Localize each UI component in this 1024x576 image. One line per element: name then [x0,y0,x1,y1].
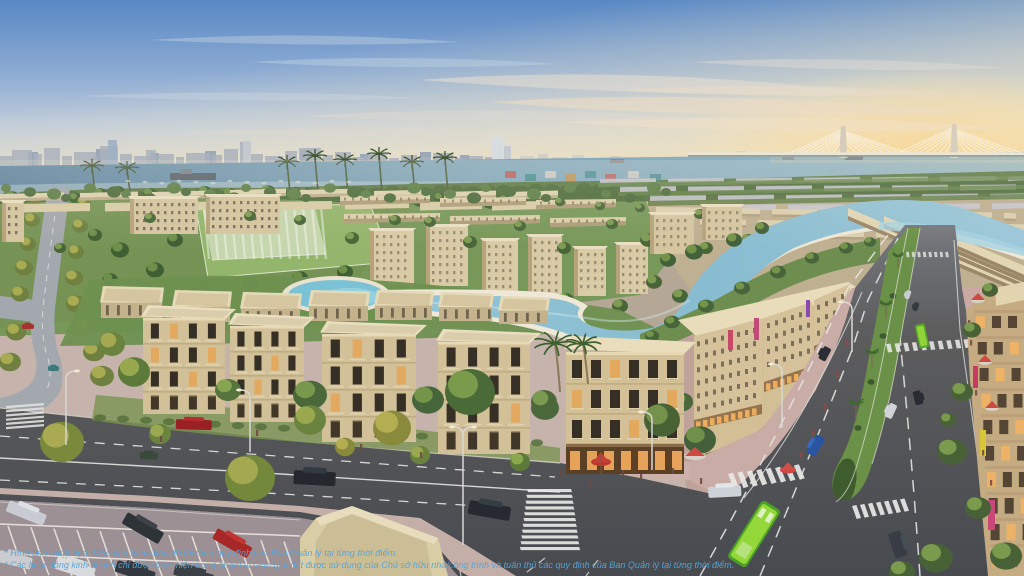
svg-text:* Các hoạt động kinh doanh chỉ: * Các hoạt động kinh doanh chỉ được thực… [4,560,734,570]
svg-text:* Hình ảnh minh họa. Việc vận: * Hình ảnh minh họa. Việc vận hành khu đ… [4,548,398,558]
